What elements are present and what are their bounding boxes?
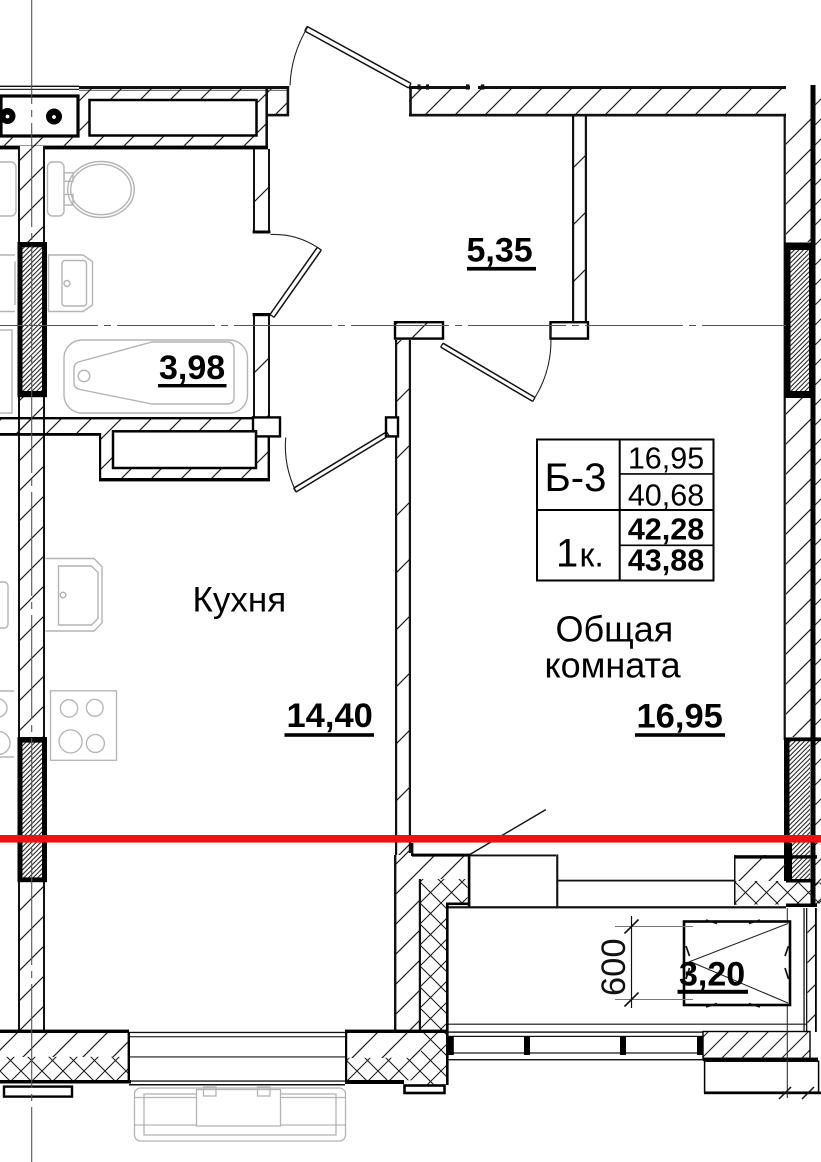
svg-text:600: 600 bbox=[595, 938, 633, 996]
svg-text:1: 1 bbox=[556, 532, 578, 576]
svg-text:43,88: 43,88 bbox=[628, 544, 704, 578]
svg-text:к.: к. bbox=[580, 537, 604, 575]
svg-text:Общая: Общая bbox=[556, 609, 674, 650]
svg-text:5,35: 5,35 bbox=[467, 232, 533, 270]
svg-text:комната: комната bbox=[545, 645, 682, 686]
svg-text:3,98: 3,98 bbox=[159, 349, 225, 387]
svg-text:16,95: 16,95 bbox=[628, 442, 704, 476]
svg-text:42,28: 42,28 bbox=[628, 513, 704, 547]
svg-text:14,40: 14,40 bbox=[287, 697, 373, 735]
svg-text:Кухня: Кухня bbox=[193, 581, 287, 620]
svg-text:Б-3: Б-3 bbox=[545, 456, 607, 500]
svg-text:3,20: 3,20 bbox=[679, 956, 745, 994]
svg-text:40,68: 40,68 bbox=[628, 479, 704, 513]
svg-text:16,95: 16,95 bbox=[637, 698, 723, 736]
